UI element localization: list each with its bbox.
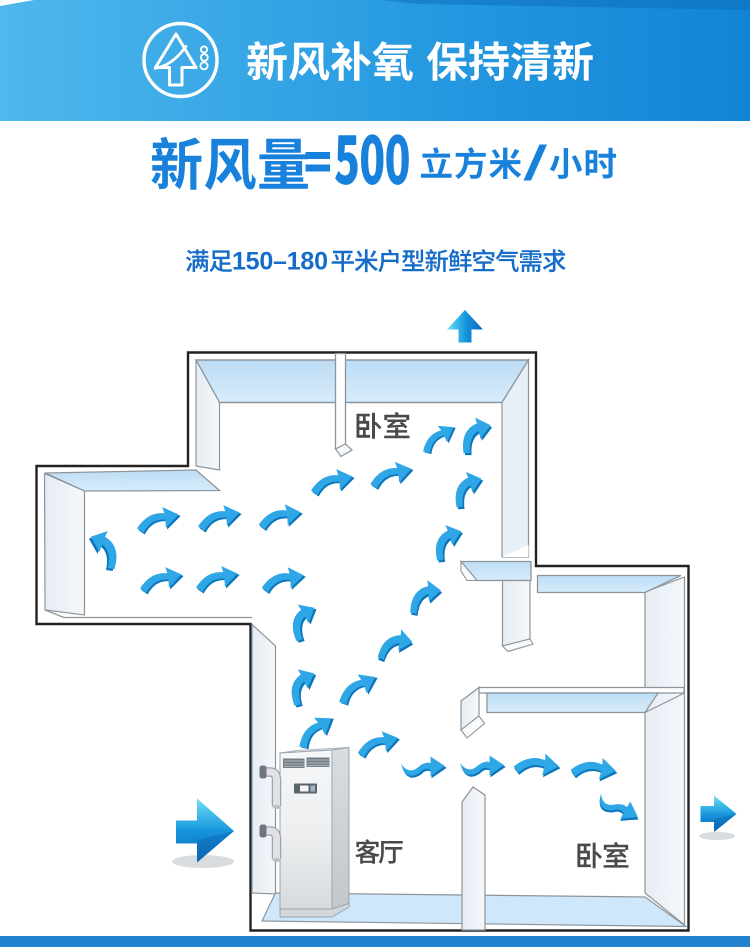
svg-text:150–180: 150–180 [232, 248, 328, 276]
